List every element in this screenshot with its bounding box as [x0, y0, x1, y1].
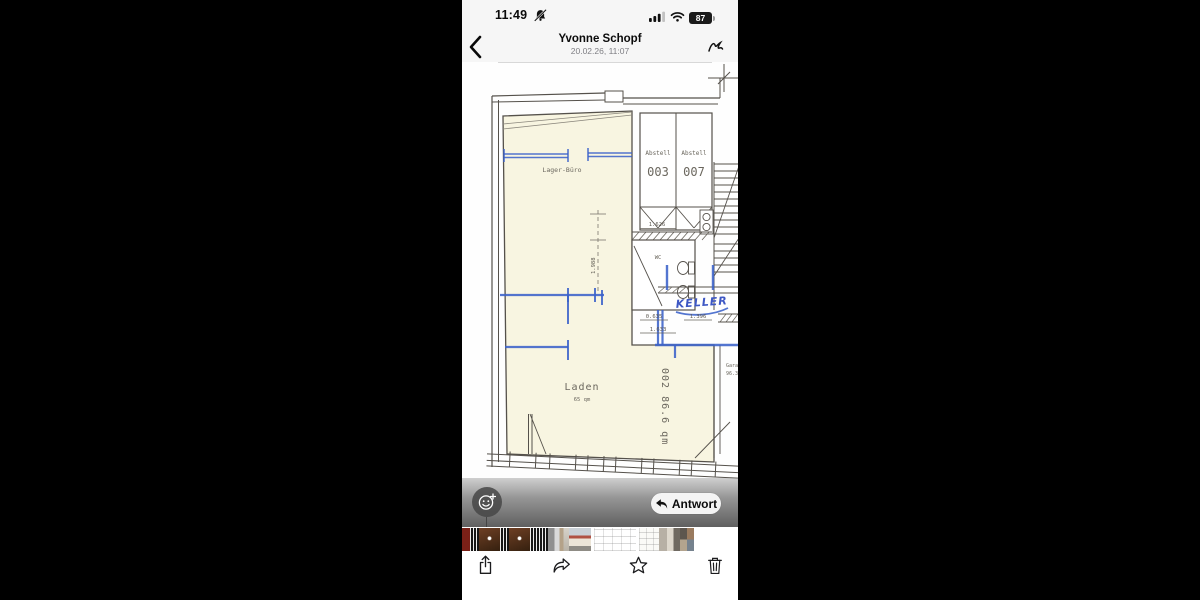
room-label-abstell-left: Abstell: [645, 150, 671, 157]
media-thumbnail[interactable]: [509, 528, 530, 551]
media-thumbnail[interactable]: [462, 528, 470, 551]
screenshot-stage: 11:49: [0, 0, 1200, 600]
star-button[interactable]: [628, 555, 648, 575]
dim-wc-a: 0.635: [646, 314, 663, 320]
dim-room-height: 1.988: [591, 257, 597, 274]
battery-icon: 87: [689, 12, 712, 24]
garage-area: 96.3: [726, 371, 738, 377]
status-time: 11:49: [495, 8, 527, 22]
add-reaction-button[interactable]: [472, 487, 502, 517]
status-indicators: 87: [649, 9, 712, 27]
bottom-toolbar: [462, 552, 738, 578]
share-icon: [477, 555, 494, 575]
wifi-icon: [670, 9, 685, 27]
media-thumbnail[interactable]: [569, 528, 591, 551]
room-number-003: 003: [647, 165, 669, 179]
photo-viewer[interactable]: 1.988: [462, 62, 738, 527]
media-thumbnail[interactable]: [479, 528, 500, 551]
reply-button[interactable]: Antwort: [651, 493, 721, 514]
room-label-wc: WC: [655, 255, 662, 261]
room-label-abstell-right: Abstell: [681, 150, 707, 157]
room-label-lager-buero: Lager-Büro: [542, 166, 581, 174]
media-thumbnail[interactable]: [539, 528, 548, 551]
chat-media-header: Yvonne Schopf 20.02.26, 11:07: [462, 30, 738, 62]
reply-arrow-icon: [655, 498, 668, 510]
reply-button-label: Antwort: [672, 497, 717, 511]
emoji-plus-icon: [478, 493, 496, 511]
floor-plan-image: 1.988: [462, 62, 738, 527]
star-icon: [629, 556, 648, 574]
dim-keller-width: 1.396: [690, 314, 707, 320]
filmstrip: [462, 527, 738, 552]
back-button[interactable]: [468, 35, 488, 59]
trash-icon: [707, 556, 723, 575]
markup-pen-icon[interactable]: [706, 36, 726, 56]
share-button[interactable]: [475, 555, 495, 575]
media-thumbnail[interactable]: [500, 528, 509, 551]
room-number-007: 007: [683, 165, 705, 179]
handwritten-keller: KELLER: [675, 294, 728, 311]
forward-arrow-icon: [552, 557, 571, 574]
media-thumbnail[interactable]: [530, 528, 539, 551]
media-thumbnail[interactable]: [639, 528, 659, 551]
media-thumbnail[interactable]: [659, 528, 680, 551]
unit-number-rotated: 002 86.6 qm: [659, 368, 670, 445]
phone-screen: 11:49: [462, 0, 738, 600]
battery-percent: 87: [696, 13, 705, 23]
dim-abstell-width: 1.626: [649, 222, 666, 228]
dim-wc-b: 1.633: [650, 327, 667, 333]
contact-name: Yvonne Schopf: [510, 33, 690, 46]
room-label-laden: Laden: [564, 382, 599, 393]
media-thumbnail[interactable]: [470, 528, 479, 551]
media-thumbnail-selected[interactable]: [594, 528, 636, 551]
status-bar: 11:49: [462, 0, 738, 30]
media-thumbnail[interactable]: [680, 528, 694, 551]
delete-button[interactable]: [705, 555, 725, 575]
cellular-signal-icon: [649, 9, 666, 27]
muted-bell-icon: [534, 9, 547, 27]
garage-label: Gara: [726, 363, 738, 369]
header-title-block: Yvonne Schopf 20.02.26, 11:07: [510, 33, 690, 56]
forward-button[interactable]: [552, 555, 572, 575]
media-thumbnail[interactable]: [548, 528, 569, 551]
laden-area: 65 qm: [574, 397, 591, 403]
message-timestamp: 20.02.26, 11:07: [510, 46, 690, 56]
